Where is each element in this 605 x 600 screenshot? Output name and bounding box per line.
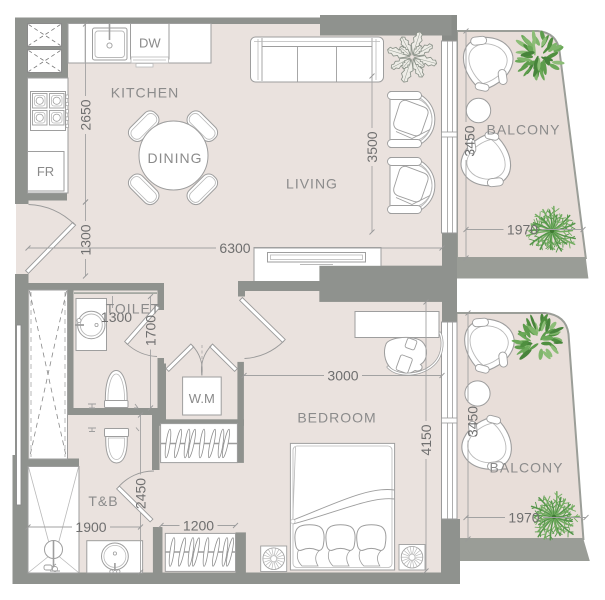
svg-text:TOILET: TOILET <box>106 301 161 317</box>
svg-text:LIVING: LIVING <box>286 176 338 192</box>
svg-text:BEDROOM: BEDROOM <box>297 410 376 426</box>
svg-text:1300: 1300 <box>77 224 93 255</box>
svg-text:W.M: W.M <box>189 391 215 406</box>
svg-text:2450: 2450 <box>132 478 148 509</box>
svg-text:6300: 6300 <box>219 240 250 256</box>
svg-text:1900: 1900 <box>75 519 106 535</box>
svg-text:FR: FR <box>37 164 54 179</box>
svg-text:BALCONY: BALCONY <box>487 122 561 138</box>
svg-text:KITCHEN: KITCHEN <box>111 85 179 101</box>
svg-text:DINING: DINING <box>148 150 203 166</box>
svg-text:4150: 4150 <box>418 424 434 455</box>
svg-text:BALCONY: BALCONY <box>490 460 564 476</box>
svg-text:DW: DW <box>139 36 161 51</box>
svg-text:3000: 3000 <box>327 367 358 383</box>
svg-text:2650: 2650 <box>77 99 93 130</box>
svg-text:1970: 1970 <box>507 221 538 237</box>
svg-text:3500: 3500 <box>364 131 380 162</box>
svg-text:1200: 1200 <box>183 517 214 533</box>
svg-text:3450: 3450 <box>461 125 477 156</box>
svg-text:1970: 1970 <box>508 509 539 525</box>
svg-text:1700: 1700 <box>142 315 158 346</box>
svg-text:3450: 3450 <box>464 406 480 437</box>
svg-text:T&B: T&B <box>88 493 118 509</box>
